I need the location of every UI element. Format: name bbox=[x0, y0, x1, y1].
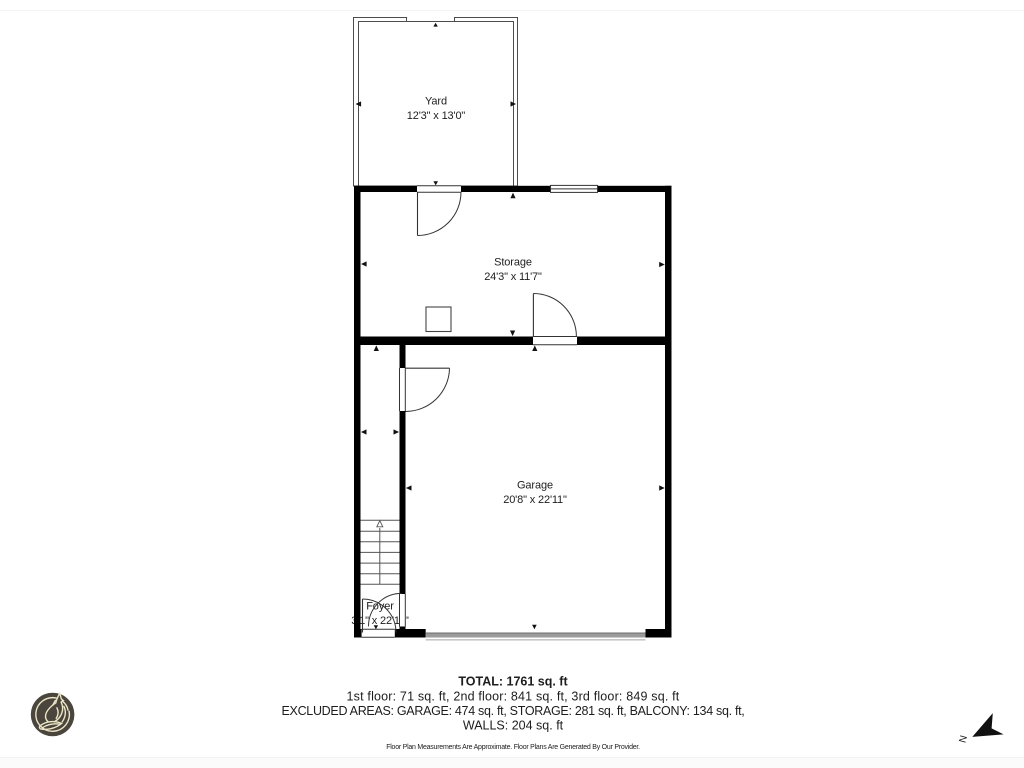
svg-text:20'8" x 22'11": 20'8" x 22'11" bbox=[503, 494, 567, 506]
svg-text:Floor Plan Measurements Are Ap: Floor Plan Measurements Are Approximate.… bbox=[386, 744, 640, 751]
svg-text:Yard: Yard bbox=[425, 96, 447, 108]
svg-text:Foyer: Foyer bbox=[366, 601, 394, 613]
svg-text:WALLS: 204 sq. ft: WALLS: 204 sq. ft bbox=[463, 719, 564, 733]
svg-text:Garage: Garage bbox=[517, 480, 553, 492]
svg-text:1st floor: 71 sq. ft, 2nd floo: 1st floor: 71 sq. ft, 2nd floor: 841 sq.… bbox=[347, 690, 680, 704]
svg-text:Storage: Storage bbox=[494, 257, 532, 269]
svg-text:24'3" x 11'7": 24'3" x 11'7" bbox=[484, 271, 542, 283]
svg-text:EXCLUDED AREAS: GARAGE: 474 sq: EXCLUDED AREAS: GARAGE: 474 sq. ft, STOR… bbox=[282, 704, 745, 718]
svg-text:TOTAL: 1761 sq. ft: TOTAL: 1761 sq. ft bbox=[458, 675, 568, 689]
svg-text:12'3" x 13'0": 12'3" x 13'0" bbox=[407, 110, 466, 122]
